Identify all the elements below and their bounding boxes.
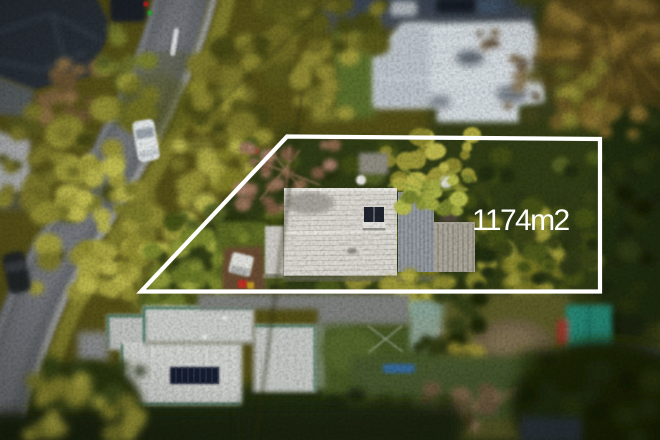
svg-text:1174m2: 1174m2: [472, 204, 570, 237]
